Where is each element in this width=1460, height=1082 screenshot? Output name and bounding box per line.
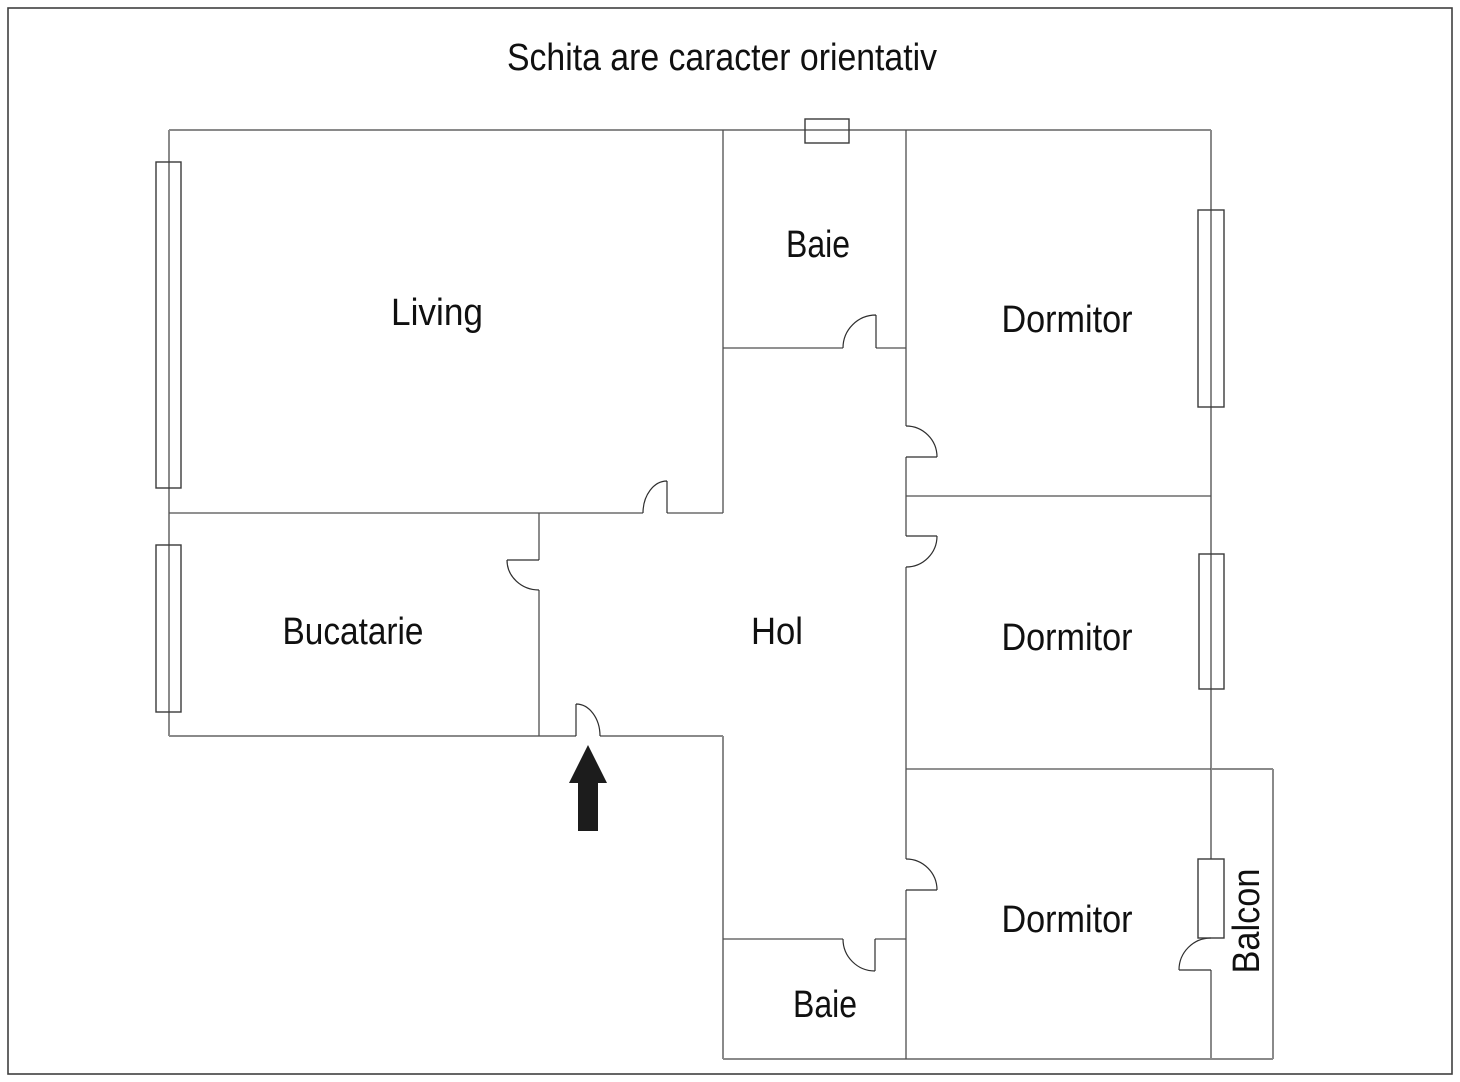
window-balcon-icon: [1198, 859, 1224, 938]
room-label-baie-top: Baie: [786, 224, 850, 266]
floor-plan-page: Schita are caracter orientativ: [0, 0, 1460, 1082]
room-label-dormitor-bottom: Dormitor: [1002, 899, 1133, 941]
room-label-baie-bottom: Baie: [793, 984, 857, 1026]
door-baie-top-icon: [843, 315, 876, 348]
door-bucatarie-icon: [507, 560, 539, 590]
page-title: Schita are caracter orientativ: [507, 37, 937, 79]
door-dormitor-middle-icon: [906, 536, 937, 567]
door-dormitor-bottom-icon: [906, 859, 937, 890]
door-dormitor-top-icon: [906, 426, 937, 457]
room-label-dormitor-middle: Dormitor: [1002, 617, 1133, 659]
door-living-icon: [643, 481, 667, 513]
room-label-dormitor-top: Dormitor: [1002, 299, 1133, 341]
floor-plan-drawing: Schita are caracter orientativ: [0, 0, 1460, 1082]
door-entrance-icon: [576, 704, 600, 736]
entrance-arrow-icon: [569, 745, 607, 831]
door-baie-bottom-icon: [843, 939, 875, 971]
door-balcon-icon: [1179, 938, 1211, 970]
room-label-bucatarie: Bucatarie: [283, 611, 424, 653]
room-label-hol: Hol: [751, 611, 803, 653]
room-labels: Living Baie Dormitor Bucatarie Hol Dormi…: [283, 224, 1269, 1026]
room-label-balcon: Balcon: [1226, 869, 1268, 974]
windows: [156, 119, 1224, 938]
room-label-living: Living: [391, 292, 483, 334]
